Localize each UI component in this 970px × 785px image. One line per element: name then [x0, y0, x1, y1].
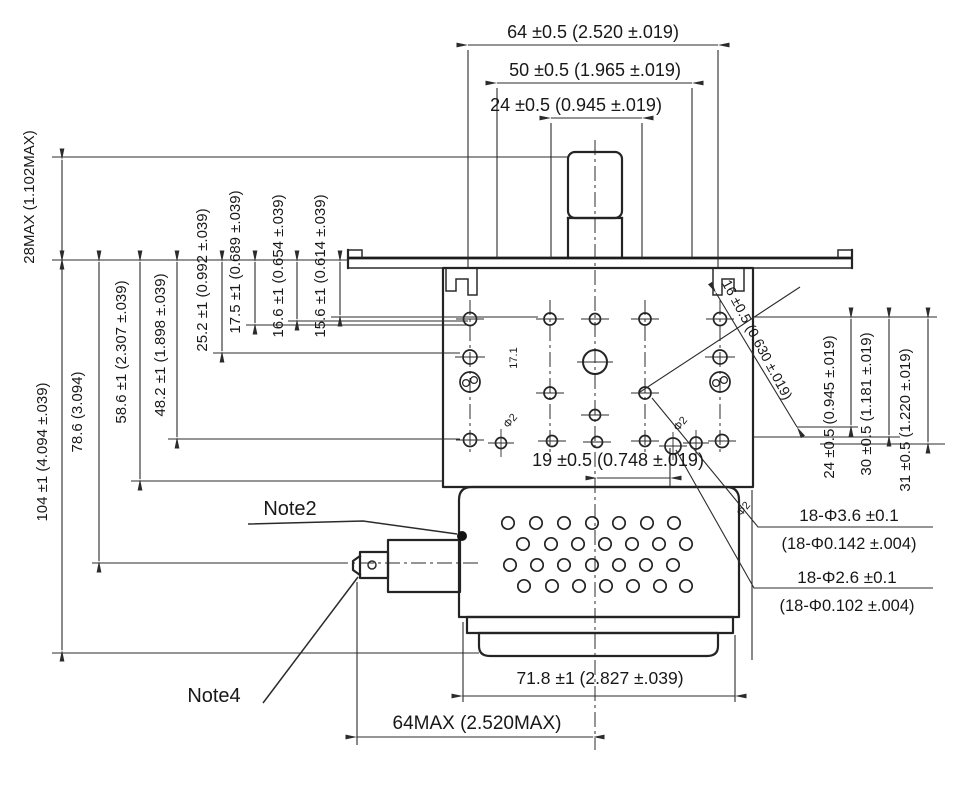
dim-104: 104 ±1 (4.094 ±.039) [34, 382, 51, 521]
dim-71-8: 71.8 ±1 (2.827 ±.039) [516, 668, 683, 688]
dim-top-64: 64 ±0.5 (2.520 ±.019) [507, 22, 679, 42]
dim-78-6: 78.6 (3.094) [69, 372, 86, 453]
dim-right-31: 31 ±0.5 (1.220 ±.019) [897, 348, 914, 491]
housing-vent-holes [502, 517, 692, 592]
dim-19: 19 ±0.5 (0.748 ±.019) [532, 450, 704, 470]
drawing-canvas: 64 ±0.5 (2.520 ±.019) 50 ±0.5 (1.965 ±.0… [0, 0, 970, 785]
phi-mark-2: Φ2 [671, 415, 690, 434]
dim-16-6: 16.6 ±1 (0.654 ±.039) [270, 194, 287, 337]
dim-top-50: 50 ±0.5 (1.965 ±.019) [509, 60, 681, 80]
callout-small-holes-line2: (18-Φ0.102 ±.004) [779, 597, 914, 615]
dim-25-2: 25.2 ±1 (0.992 ±.039) [194, 208, 211, 351]
leader-note2 [248, 521, 457, 534]
engineering-drawing: 64 ±0.5 (2.520 ±.019) 50 ±0.5 (1.965 ±.0… [0, 0, 970, 785]
bottom-flange [467, 617, 733, 633]
dim-58-6: 58.6 ±1 (2.307 ±.039) [113, 280, 130, 423]
note2-dot [457, 531, 467, 541]
note-labels: Note2 Note4 [187, 498, 316, 707]
phi-mark-1: Φ2 [501, 412, 520, 431]
dim-top-24: 24 ±0.5 (0.945 ±.019) [490, 95, 662, 115]
callout-large-holes-line2: (18-Φ0.142 ±.004) [781, 535, 916, 553]
flange-notch-left [446, 268, 477, 295]
dim-17-5: 17.5 ±1 (0.689 ±.039) [227, 190, 244, 333]
dim-48-2: 48.2 ±1 (1.898 ±.039) [152, 273, 169, 416]
callout-small-holes-line1: 18-Φ2.6 ±0.1 [797, 568, 896, 587]
leader-note4 [263, 577, 358, 703]
shaft-step-small [360, 552, 388, 578]
dim-28max: 28MAX (1.102MAX) [21, 130, 38, 263]
extension-lines [52, 50, 945, 745]
note4-label: Note4 [187, 685, 240, 707]
base [479, 633, 718, 656]
callout-large-holes-line1: 18-Φ3.6 ±0.1 [799, 506, 898, 525]
dim-15-6: 15.6 ±1 (0.614 ±.039) [312, 194, 329, 337]
blower-housing [459, 487, 739, 617]
note2-label: Note2 [263, 498, 316, 520]
dim-64max: 64MAX (2.520MAX) [393, 713, 562, 734]
dim-right-24: 24 ±0.5 (0.945 ±.019) [821, 335, 838, 478]
shaft-step-large [388, 540, 460, 592]
dim-right-30: 30 ±0.5 (1.181 ±.019) [858, 332, 875, 475]
hole-callouts: 18-Φ3.6 ±0.1 (18-Φ0.142 ±.004) 18-Φ2.6 ±… [779, 506, 916, 615]
dim-17-1: 17.1 [508, 347, 520, 368]
